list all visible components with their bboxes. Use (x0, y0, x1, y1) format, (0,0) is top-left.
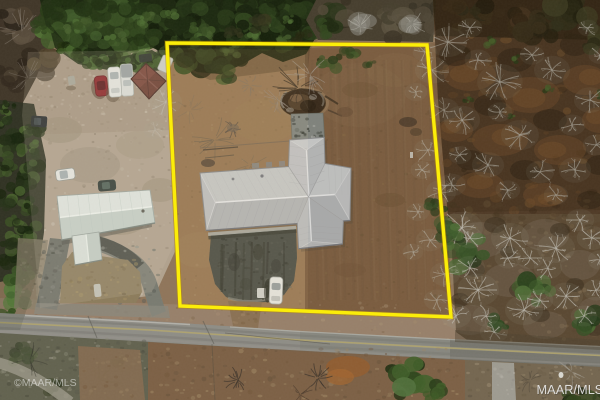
svg-text:©MAAR/MLS: ©MAAR/MLS (14, 377, 77, 389)
svg-text:MAAR/MLS: MAAR/MLS (537, 382, 600, 397)
